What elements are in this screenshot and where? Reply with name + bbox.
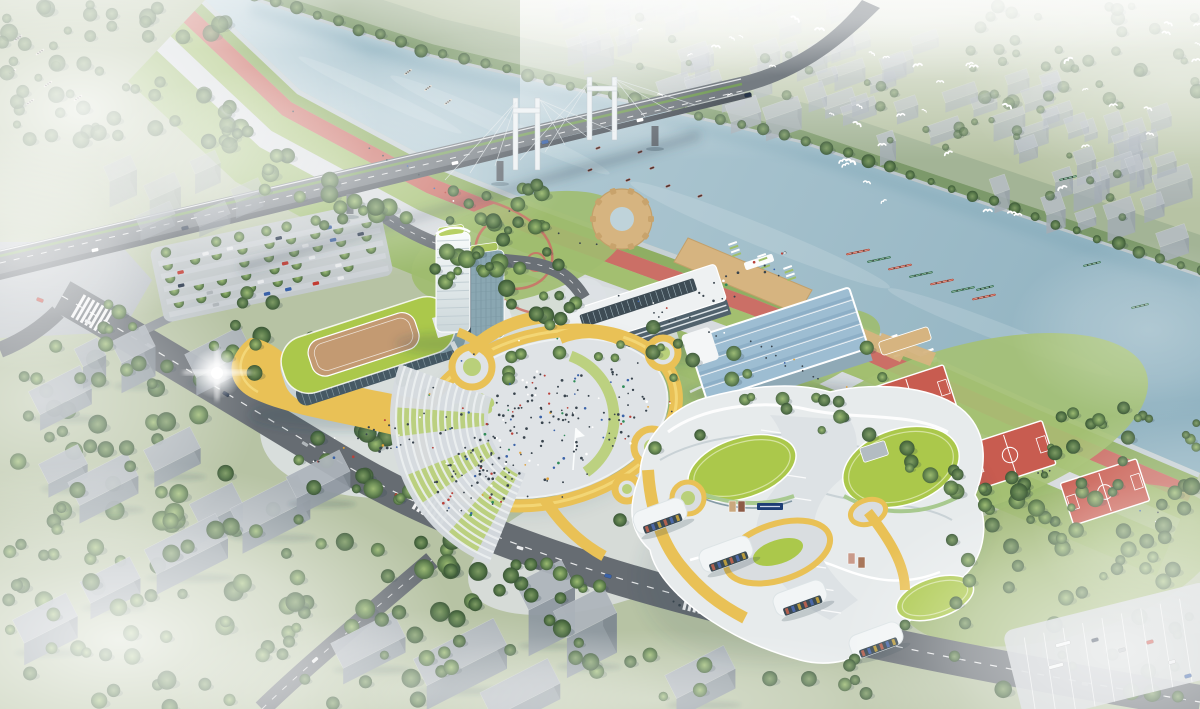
person	[465, 450, 467, 452]
person	[481, 460, 483, 462]
person	[668, 321, 670, 323]
person	[557, 462, 560, 465]
person	[721, 298, 723, 300]
person	[567, 407, 569, 409]
person	[490, 452, 492, 454]
person	[661, 311, 663, 313]
person	[490, 472, 492, 474]
person	[771, 346, 773, 348]
person	[378, 450, 381, 453]
tree	[493, 584, 506, 597]
person	[557, 418, 559, 420]
person	[561, 496, 563, 498]
tree	[742, 369, 752, 379]
person	[817, 378, 819, 380]
person	[510, 419, 512, 421]
person	[491, 477, 494, 480]
person	[553, 429, 555, 431]
render-shape	[610, 207, 634, 231]
render-shape	[463, 358, 481, 376]
person	[764, 264, 766, 266]
person	[760, 346, 762, 348]
person	[516, 432, 518, 434]
poster	[729, 501, 736, 512]
person	[588, 395, 590, 397]
tree	[952, 468, 964, 480]
person	[474, 437, 476, 439]
person	[479, 470, 481, 472]
person	[564, 435, 566, 437]
person	[612, 445, 614, 447]
person	[514, 407, 516, 409]
tree	[1005, 471, 1018, 484]
person	[616, 374, 618, 376]
person	[447, 464, 449, 466]
person	[470, 497, 472, 499]
person	[725, 275, 727, 277]
person	[333, 456, 336, 459]
person	[614, 437, 616, 439]
person	[618, 419, 620, 421]
tree	[899, 440, 914, 455]
person	[568, 421, 570, 423]
tree	[978, 484, 988, 494]
person	[561, 412, 563, 414]
person	[637, 362, 639, 364]
tree	[468, 597, 482, 611]
person	[582, 459, 584, 461]
person	[572, 414, 575, 417]
person	[784, 365, 786, 367]
person	[549, 422, 551, 424]
tree	[564, 302, 576, 314]
person	[575, 449, 577, 451]
poster	[738, 501, 745, 512]
person	[539, 373, 541, 375]
person	[521, 407, 523, 409]
person	[577, 417, 579, 419]
tree	[648, 441, 661, 454]
person	[482, 494, 484, 496]
tree	[673, 339, 683, 349]
person	[773, 268, 775, 270]
person	[618, 295, 620, 297]
person	[641, 306, 643, 308]
person	[608, 439, 610, 441]
mist-patch	[320, 30, 720, 170]
person	[713, 282, 715, 284]
person	[632, 389, 634, 391]
tree	[524, 588, 539, 603]
person	[521, 379, 523, 381]
person	[493, 472, 495, 474]
person	[527, 400, 530, 403]
bird	[984, 210, 992, 212]
rendering-canvas	[0, 0, 1200, 709]
tree	[948, 185, 956, 193]
person	[505, 461, 507, 463]
person	[498, 457, 501, 460]
person	[544, 375, 546, 377]
person	[722, 279, 725, 282]
render-shape	[648, 216, 654, 222]
person	[620, 423, 622, 425]
person	[525, 386, 528, 389]
person	[513, 444, 515, 446]
person	[480, 465, 483, 468]
tree	[922, 467, 938, 483]
tree	[540, 557, 553, 570]
person	[442, 502, 445, 505]
person	[439, 432, 442, 435]
person	[592, 426, 594, 428]
person	[543, 478, 546, 481]
person	[511, 478, 513, 480]
person	[642, 396, 644, 398]
person	[490, 454, 492, 456]
tree	[570, 575, 584, 589]
person	[503, 468, 505, 470]
tree	[781, 403, 793, 415]
tree	[877, 372, 887, 382]
tree	[989, 196, 999, 206]
person	[548, 403, 550, 405]
person	[464, 447, 466, 449]
person	[357, 437, 359, 439]
tree	[249, 338, 261, 350]
person	[449, 428, 451, 430]
person	[518, 340, 520, 342]
person	[610, 381, 612, 383]
person	[464, 455, 466, 457]
person	[490, 493, 492, 495]
tree	[905, 170, 914, 179]
tree	[293, 455, 304, 466]
person	[575, 441, 578, 444]
person	[458, 453, 460, 455]
person	[781, 252, 783, 254]
person	[556, 338, 558, 340]
person	[574, 393, 576, 395]
person	[394, 427, 396, 429]
person	[455, 480, 457, 482]
person	[318, 461, 320, 463]
tree	[539, 291, 548, 300]
tree	[1050, 220, 1060, 230]
person	[644, 305, 646, 307]
person	[528, 460, 530, 462]
person	[643, 398, 645, 400]
person	[400, 444, 402, 446]
tree	[685, 353, 700, 368]
person	[527, 496, 529, 498]
tree	[927, 178, 934, 185]
person	[511, 415, 514, 418]
person	[451, 427, 453, 429]
person	[512, 411, 514, 413]
tree	[944, 480, 959, 495]
tree	[529, 306, 544, 321]
tree	[469, 562, 488, 581]
person	[379, 447, 382, 450]
tree	[513, 262, 526, 275]
person	[557, 386, 559, 388]
tree	[515, 348, 527, 360]
person	[753, 261, 756, 264]
tree	[524, 558, 537, 571]
person	[550, 411, 552, 413]
person	[734, 296, 736, 298]
person	[1037, 472, 1039, 474]
person	[629, 442, 631, 444]
person	[645, 400, 648, 403]
person	[778, 275, 780, 277]
person	[506, 484, 509, 487]
person	[601, 419, 603, 421]
person	[334, 437, 336, 439]
person	[541, 421, 544, 424]
person	[585, 453, 588, 456]
tree	[657, 343, 665, 351]
person	[525, 427, 528, 430]
person	[487, 478, 490, 481]
person	[465, 458, 468, 461]
person	[546, 477, 549, 480]
person	[530, 417, 532, 419]
person	[472, 449, 474, 451]
person	[577, 374, 579, 376]
person	[764, 271, 767, 274]
tree	[967, 191, 978, 202]
tree	[1056, 411, 1067, 422]
person	[631, 378, 633, 380]
person	[620, 431, 623, 434]
person	[487, 440, 489, 442]
person	[553, 467, 555, 469]
person	[473, 353, 475, 355]
tree	[616, 340, 625, 349]
person	[519, 404, 521, 406]
person	[666, 307, 668, 309]
person	[627, 435, 629, 437]
tree	[265, 295, 279, 309]
person	[486, 470, 488, 472]
render-shape	[0, 0, 1200, 50]
person	[633, 416, 635, 418]
person	[689, 316, 691, 318]
person	[474, 475, 476, 477]
person	[373, 429, 375, 431]
person	[536, 370, 539, 373]
person	[531, 394, 534, 397]
person	[512, 464, 514, 466]
person	[423, 413, 425, 415]
person	[533, 376, 535, 378]
person	[468, 411, 470, 413]
person	[737, 271, 740, 274]
person	[498, 413, 501, 416]
person	[513, 426, 515, 428]
tree	[860, 341, 874, 355]
person	[445, 463, 447, 465]
person	[589, 426, 591, 428]
tree	[552, 259, 564, 271]
tree	[1067, 407, 1079, 419]
person	[540, 408, 542, 410]
person	[407, 423, 409, 425]
person	[446, 510, 448, 512]
person	[846, 386, 848, 388]
person	[784, 252, 786, 254]
person	[496, 402, 498, 404]
tree	[395, 493, 405, 503]
poster	[848, 553, 855, 564]
person	[437, 491, 440, 494]
person	[573, 412, 575, 414]
person	[539, 416, 542, 419]
person	[436, 481, 439, 484]
tree	[905, 463, 914, 472]
person	[460, 510, 462, 512]
person	[502, 419, 504, 421]
person	[494, 437, 496, 439]
tree	[363, 479, 383, 499]
tree	[613, 513, 627, 527]
tree	[611, 353, 620, 362]
person	[463, 492, 465, 494]
tree	[862, 427, 877, 442]
person	[537, 464, 539, 466]
person	[535, 387, 537, 389]
person	[561, 439, 563, 441]
person	[614, 413, 616, 415]
person	[801, 365, 803, 367]
person	[489, 496, 492, 499]
tree	[544, 319, 555, 330]
tree	[724, 372, 739, 387]
person	[611, 371, 614, 374]
person	[712, 299, 715, 302]
person	[653, 312, 655, 314]
person	[793, 359, 795, 361]
person	[629, 416, 631, 418]
person	[434, 481, 436, 483]
person	[723, 332, 725, 334]
person	[485, 476, 487, 478]
tree	[554, 312, 568, 326]
tree	[555, 592, 567, 604]
person	[429, 393, 431, 395]
person	[447, 498, 450, 501]
person	[384, 419, 386, 421]
person	[352, 455, 355, 458]
tree	[553, 566, 568, 581]
person	[562, 419, 564, 421]
tree	[352, 484, 361, 493]
person	[562, 481, 564, 483]
person	[638, 301, 640, 303]
person	[450, 495, 452, 497]
person	[343, 447, 345, 449]
person	[750, 340, 752, 342]
person	[652, 302, 654, 304]
person	[573, 451, 575, 453]
tree	[593, 579, 606, 592]
person	[541, 440, 544, 443]
person	[471, 485, 473, 487]
person	[505, 422, 507, 424]
tree	[818, 394, 830, 406]
person	[564, 395, 567, 398]
person	[627, 404, 629, 406]
person	[698, 292, 700, 294]
tree	[542, 247, 551, 256]
person	[496, 395, 499, 398]
tree	[310, 431, 325, 446]
person	[708, 331, 710, 333]
person	[534, 394, 536, 396]
person	[507, 409, 509, 411]
person	[576, 445, 578, 447]
render-shape	[622, 484, 632, 494]
person	[552, 415, 554, 417]
person	[622, 385, 625, 388]
person	[524, 464, 526, 466]
person	[608, 432, 610, 434]
person	[519, 452, 521, 454]
person	[478, 464, 480, 466]
person	[598, 397, 600, 399]
person	[622, 420, 625, 423]
person	[556, 392, 558, 394]
person	[584, 407, 587, 410]
person	[412, 441, 414, 443]
person	[645, 410, 647, 412]
person	[618, 396, 620, 398]
person	[508, 449, 510, 451]
person	[500, 501, 502, 503]
tree	[502, 372, 515, 385]
person	[561, 379, 564, 382]
person	[517, 407, 519, 409]
tree	[1118, 213, 1126, 221]
person	[802, 370, 804, 372]
person	[451, 492, 453, 494]
person	[509, 383, 511, 385]
tree	[1073, 226, 1081, 234]
person	[509, 430, 511, 432]
person	[622, 415, 625, 418]
tree	[503, 567, 519, 583]
tree	[443, 563, 457, 577]
person	[470, 512, 472, 514]
person	[565, 413, 568, 416]
person	[548, 393, 550, 395]
person	[580, 457, 583, 460]
person	[610, 368, 612, 370]
person	[627, 379, 630, 382]
person	[575, 406, 578, 409]
tree	[541, 221, 551, 231]
person	[540, 445, 542, 447]
person	[603, 412, 605, 414]
person	[520, 454, 522, 456]
tree	[453, 267, 462, 276]
person	[580, 374, 583, 377]
person	[574, 378, 576, 380]
person	[647, 406, 649, 408]
person	[368, 426, 370, 428]
